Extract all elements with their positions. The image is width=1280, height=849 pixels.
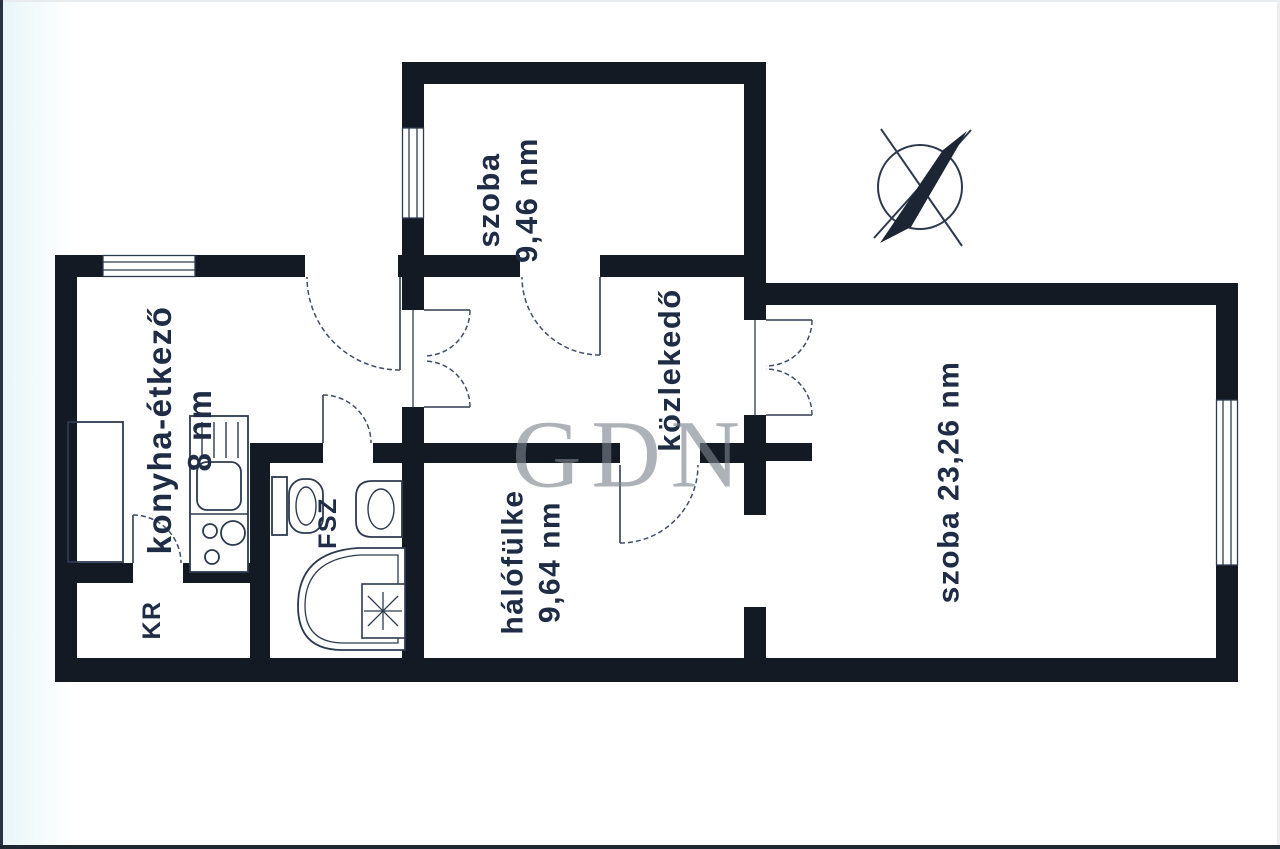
page-edge-top <box>0 0 1280 2</box>
double-door-hall-icon <box>413 310 470 407</box>
double-door-big-room-icon <box>755 320 812 415</box>
room-area: 9,46 nm <box>508 137 546 263</box>
room-name: szoba 23,26 nm <box>932 361 969 604</box>
window-kitchen-icon <box>103 256 195 277</box>
compass-icon <box>874 129 971 246</box>
room-label-halofulke: hálófülke 9,64 nm <box>495 489 568 634</box>
door-top-room-icon <box>522 277 600 355</box>
watermark: GDN <box>512 399 750 510</box>
room-name: szoba <box>470 137 508 263</box>
room-area: 9,64 nm <box>532 489 569 634</box>
water-heater-icon <box>362 584 405 638</box>
room-label-szoba-top: szoba 9,46 nm <box>470 137 546 263</box>
room-name: konyha-étkező <box>140 306 180 555</box>
door-kitchen-entry-icon <box>307 277 400 370</box>
room-label-szoba-nagy: szoba 23,26 nm <box>932 361 969 604</box>
room-area: 8 nm <box>180 306 220 555</box>
room-label-kr: KR <box>137 600 168 639</box>
window-top-room-icon <box>403 128 424 218</box>
room-label-fsz: FSZ <box>313 497 344 549</box>
room-name: KR <box>137 600 168 639</box>
page-edge-bottom <box>0 845 1280 849</box>
room-label-konyha: konyha-étkező 8 nm <box>140 306 221 555</box>
room-name: hálófülke <box>495 489 532 634</box>
floor-plan: szoba 9,46 nm konyha-étkező 8 nm közleke… <box>0 0 1280 849</box>
page-edge-left <box>0 0 3 849</box>
kitchen-counter-icon <box>68 422 123 562</box>
washbasin-icon <box>356 481 402 537</box>
door-bathroom-icon <box>323 395 371 443</box>
window-big-room-icon <box>1217 400 1238 565</box>
room-name: FSZ <box>313 497 344 549</box>
